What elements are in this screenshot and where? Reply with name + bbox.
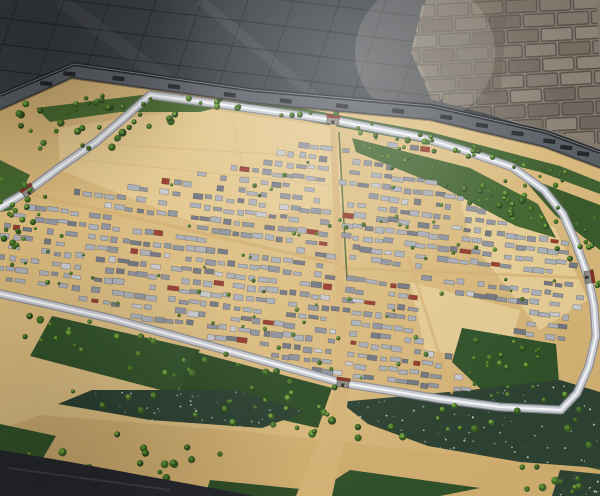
diorama-photo bbox=[0, 0, 600, 496]
photo-frame bbox=[0, 0, 600, 496]
lighting bbox=[0, 0, 600, 496]
